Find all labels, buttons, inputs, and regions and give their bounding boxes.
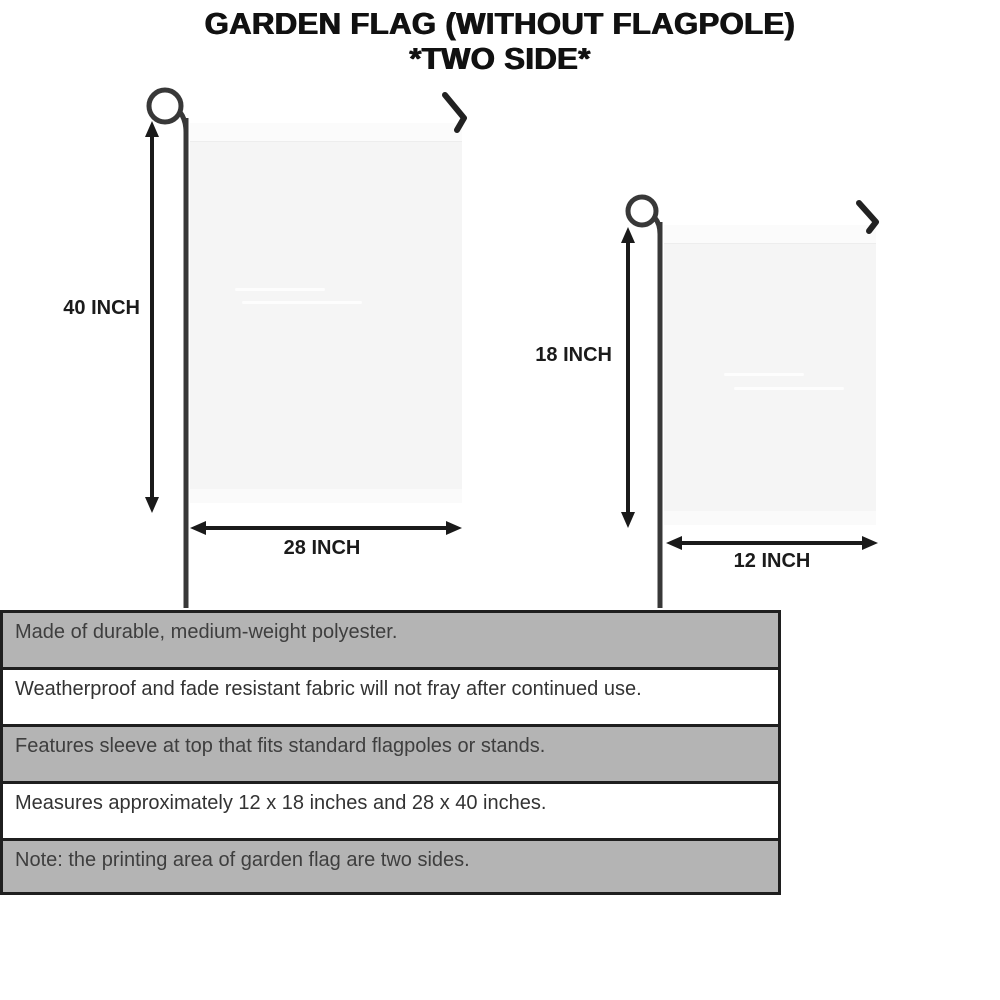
- feature-text: Measures approximately 12 x 18 inches an…: [15, 792, 546, 814]
- small-flag-hem: [664, 511, 876, 525]
- large-pole-neck: [180, 112, 186, 132]
- feature-row: Measures approximately 12 x 18 inches an…: [3, 784, 778, 841]
- fold-line: [235, 288, 325, 291]
- feature-row: Weatherproof and fade resistant fabric w…: [3, 670, 778, 727]
- large-flag-height-label: 40 INCH: [30, 297, 140, 320]
- feature-row: Made of durable, medium-weight polyester…: [3, 613, 778, 670]
- title-block: GARDEN FLAG (WITHOUT FLAGPOLE) *TWO SIDE…: [0, 6, 1000, 76]
- large-flag-hem: [190, 489, 462, 503]
- small-pole-neck: [655, 218, 660, 234]
- fold-line: [734, 387, 844, 390]
- feature-text: Weatherproof and fade resistant fabric w…: [15, 678, 642, 700]
- large-height-arrow-icon: [145, 121, 159, 513]
- page-subtitle: *TWO SIDE*: [0, 41, 1000, 76]
- large-width-arrow-icon: [190, 521, 462, 535]
- small-flag-image: [664, 225, 876, 525]
- small-width-arrow-icon: [666, 536, 878, 550]
- fold-line: [724, 373, 804, 376]
- small-flag-height-label: 18 INCH: [502, 344, 612, 367]
- page-title: GARDEN FLAG (WITHOUT FLAGPOLE): [0, 6, 1000, 41]
- large-pole-loop-icon: [149, 90, 181, 122]
- feature-text: Features sleeve at top that fits standar…: [15, 735, 545, 757]
- small-flag-width-label: 12 INCH: [682, 550, 862, 573]
- feature-row: Note: the printing area of garden flag a…: [3, 841, 778, 892]
- feature-row: Features sleeve at top that fits standar…: [3, 727, 778, 784]
- large-flag-image: [190, 123, 462, 503]
- feature-text: Note: the printing area of garden flag a…: [15, 849, 470, 871]
- small-pole-loop-icon: [628, 197, 656, 225]
- features-table: Made of durable, medium-weight polyester…: [0, 610, 781, 895]
- product-size-guide: GARDEN FLAG (WITHOUT FLAGPOLE) *TWO SIDE…: [0, 0, 1000, 1000]
- large-flag-sleeve: [190, 123, 462, 142]
- large-flag-width-label: 28 INCH: [232, 537, 412, 560]
- small-height-arrow-icon: [621, 227, 635, 528]
- small-flag-sleeve: [664, 225, 876, 244]
- fold-line: [242, 301, 362, 304]
- feature-text: Made of durable, medium-weight polyester…: [15, 621, 397, 643]
